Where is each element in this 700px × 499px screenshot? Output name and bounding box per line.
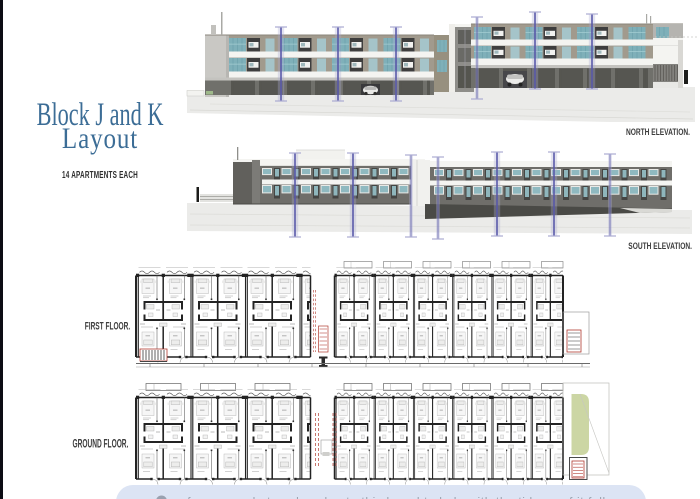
svg-text:FIRST FLOOR.: FIRST FLOOR. <box>85 320 130 332</box>
svg-text:a few more photos placed onto: a few more photos placed onto this board… <box>176 495 612 499</box>
svg-text:SOUTH ELEVATION.: SOUTH ELEVATION. <box>628 241 692 251</box>
svg-text:GROUND FLOOR.: GROUND FLOOR. <box>72 438 128 450</box>
svg-text:NORTH ELEVATION.: NORTH ELEVATION. <box>626 127 690 137</box>
